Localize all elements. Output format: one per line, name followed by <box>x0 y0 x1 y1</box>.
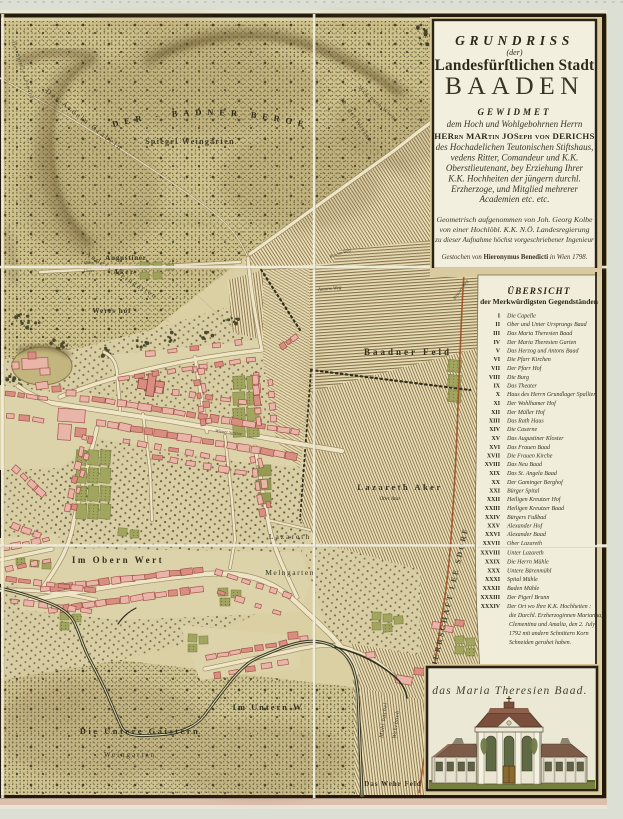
svg-text:Spital Mühle: Spital Mühle <box>507 577 538 583</box>
svg-text:XXI: XXI <box>489 489 501 495</box>
svg-text:XXVIII: XXVIII <box>480 551 500 557</box>
svg-text:XII: XII <box>491 410 501 416</box>
svg-text:Clementina und Amalia, den 2.: Clementina und Amalia, den 2. July <box>509 622 595 628</box>
svg-text:XXIX: XXIX <box>485 559 501 565</box>
svg-text:Alexander Hof: Alexander Hof <box>506 523 543 530</box>
svg-text:XXXII: XXXII <box>483 586 501 592</box>
svg-text:Heiligen Kreutzer Baad: Heiligen Kreutzer Baad <box>506 506 565 512</box>
svg-text:BAADEN: BAADEN <box>445 71 584 100</box>
svg-text:GRUNDRISS: GRUNDRISS <box>455 33 574 48</box>
svg-text:XXIII: XXIII <box>485 506 501 512</box>
svg-text:Lazareth Aker: Lazareth Aker <box>357 482 442 492</box>
svg-text:Im Obern Wert: Im Obern Wert <box>72 555 164 565</box>
svg-text:Der Gaminger Berghof: Der Gaminger Berghof <box>506 479 564 486</box>
svg-text:Geometrisch aufgenommen von Jo: Geometrisch aufgenommen von Joh. Georg K… <box>436 215 593 224</box>
svg-text:Oberstlieutenant, bey Erziehun: Oberstlieutenant, bey Erziehung Ihrer <box>446 163 584 173</box>
svg-text:Lazareth: Lazareth <box>269 532 311 541</box>
svg-text:XX: XX <box>491 480 500 486</box>
svg-text:VII: VII <box>491 366 501 372</box>
svg-text:II: II <box>495 322 500 328</box>
svg-text:Melngarten: Melngarten <box>265 568 315 577</box>
svg-text:VIII: VIII <box>489 375 501 381</box>
svg-text:Baadner Feld: Baadner Feld <box>364 347 452 357</box>
svg-text:Augustiner: Augustiner <box>105 254 146 262</box>
svg-text:XVII: XVII <box>487 454 501 460</box>
svg-text:Academien etc. etc.: Academien etc. etc. <box>479 194 550 204</box>
svg-text:Das Theater: Das Theater <box>506 384 537 390</box>
svg-text:Der Ort wo Ihre K.K. Hochheite: Der Ort wo Ihre K.K. Hochheiten : <box>506 604 591 610</box>
svg-text:Baden Mühle: Baden Mühle <box>507 586 539 592</box>
svg-text:XVI: XVI <box>489 445 501 451</box>
svg-text:XVIII: XVIII <box>485 462 501 468</box>
svg-text:Das Wehr Feld: Das Wehr Feld <box>364 780 421 788</box>
svg-text:vedens Ritter, Comandeur und K: vedens Ritter, Comandeur und K.K. <box>451 153 579 163</box>
svg-text:von einer Hochlöbl. K.K. N.Ö.: von einer Hochlöbl. K.K. N.Ö. Landesregi… <box>439 225 589 234</box>
svg-text:Ober Azar: Ober Azar <box>380 497 401 502</box>
svg-text:Der Maria Theresien Garten: Der Maria Theresien Garten <box>506 340 576 346</box>
svg-text:III: III <box>493 331 501 337</box>
svg-text:Die Burg: Die Burg <box>506 375 529 381</box>
svg-text:Das St. Angela Baad: Das St. Angela Baad <box>506 471 558 477</box>
svg-text:Alexander Baad: Alexander Baad <box>506 532 547 538</box>
svg-text:Das Herzog und Antons Baad: Das Herzog und Antons Baad <box>506 349 580 355</box>
svg-text:das Maria Theresien Baad.: das Maria Theresien Baad. <box>432 685 587 697</box>
svg-text:die Durchl. Erzherzoginnen Mar: die Durchl. Erzherzoginnen Marianna, <box>509 613 603 619</box>
svg-text:Ober und Unter Ursprungs Baad: Ober und Unter Ursprungs Baad <box>507 322 588 328</box>
svg-text:Gestochen von Hieronymus Bened: Gestochen von Hieronymus Benedicti in Wi… <box>442 254 588 261</box>
svg-text:Das Augustiner Kloster: Das Augustiner Kloster <box>506 436 564 442</box>
svg-text:Schneiden geruhet haben.: Schneiden geruhet haben. <box>509 640 571 646</box>
svg-text:VI: VI <box>493 357 500 363</box>
svg-text:GEWIDMET: GEWIDMET <box>477 107 551 117</box>
svg-text:Untere Bärenmühl: Untere Bärenmühl <box>507 568 552 574</box>
svg-text:Das Maria Theresien Baad: Das Maria Theresien Baad <box>506 331 573 337</box>
svg-text:der Merkwürdigsten Gegendständ: der Merkwürdigsten Gegendständen <box>480 297 599 306</box>
svg-text:IV: IV <box>493 340 500 346</box>
svg-text:V: V <box>496 349 501 355</box>
svg-text:Das Frauen Baad: Das Frauen Baad <box>506 445 551 451</box>
svg-text:Der Pigerl Brunn: Der Pigerl Brunn <box>506 595 549 601</box>
svg-text:XI: XI <box>493 401 500 407</box>
svg-text:Bürger Spital: Bürger Spital <box>507 489 540 495</box>
svg-text:Unter Lazareth: Unter Lazareth <box>507 551 544 557</box>
svg-text:Die Capelle: Die Capelle <box>506 314 536 320</box>
svg-text:Bürgers Fußbad: Bürgers Fußbad <box>507 514 547 521</box>
svg-text:XXX: XXX <box>487 568 501 574</box>
svg-text:X: X <box>496 392 501 398</box>
svg-text:1792 mit andern Schnittern Kor: 1792 mit andern Schnittern Korn <box>509 631 589 637</box>
svg-text:XXXIII: XXXIII <box>480 595 500 601</box>
svg-text:XXIV: XXIV <box>485 515 501 521</box>
svg-text:K.K. Hochheiten der jüngern du: K.K. Hochheiten der jüngern durchl. <box>447 174 580 184</box>
svg-text:Die Pfarr Kirchen: Die Pfarr Kirchen <box>506 356 551 363</box>
svg-text:XXVI: XXVI <box>485 532 501 538</box>
svg-text:XXV: XXV <box>487 524 501 530</box>
svg-text:Der Pfarr Hof: Der Pfarr Hof <box>506 365 543 372</box>
svg-text:Die Untere Gaistern: Die Untere Gaistern <box>80 726 201 736</box>
svg-text:des Hochadelichen Teutonischen: des Hochadelichen Teutonischen Stiftshau… <box>436 142 594 152</box>
svg-text:Weingarten: Weingarten <box>104 751 156 759</box>
svg-text:Spiegel Weingarten: Spiegel Weingarten <box>145 137 235 146</box>
svg-text:ÜBERSICHT: ÜBERSICHT <box>507 286 570 296</box>
svg-text:XIX: XIX <box>489 471 501 477</box>
svg-text:dem Hoch und Wohlgebohrnen Her: dem Hoch und Wohlgebohrnen Herrn <box>447 119 583 129</box>
svg-text:IX: IX <box>493 384 500 390</box>
svg-text:zu dieser Aufnahme höchst vorg: zu dieser Aufnahme höchst vorgeschrieben… <box>434 236 594 244</box>
svg-text:XXII: XXII <box>487 497 501 503</box>
svg-text:Das Neu Baad: Das Neu Baad <box>506 462 543 468</box>
svg-text:(der): (der) <box>507 48 523 57</box>
svg-text:Weres hof: Weres hof <box>92 307 131 315</box>
svg-text:Haus des Herrn Grundlager Spal: Haus des Herrn Grundlager Spallier <box>506 392 596 398</box>
svg-text:Erzherzoge, und Mitglied mehre: Erzherzoge, und Mitglied mehrerer <box>450 184 578 194</box>
svg-text:XXXI: XXXI <box>485 577 501 583</box>
svg-text:Die Caserne: Die Caserne <box>506 427 537 433</box>
svg-text:XIII: XIII <box>489 419 501 425</box>
svg-text:Das Rath Haus: Das Rath Haus <box>506 419 544 425</box>
svg-text:Der Müller Hof: Der Müller Hof <box>506 409 546 416</box>
svg-text:XIV: XIV <box>489 427 501 433</box>
svg-text:Im Untern W: Im Untern W <box>233 702 304 712</box>
svg-text:Heiligen Kreutzer Hof: Heiligen Kreutzer Hof <box>506 496 562 503</box>
svg-text:Die Frauen Kirche: Die Frauen Kirche <box>506 454 553 460</box>
svg-text:Die Herrn Mühle: Die Herrn Mühle <box>506 559 549 565</box>
svg-text:Der Wohlhamer Hof: Der Wohlhamer Hof <box>506 400 557 407</box>
svg-text:XXXIV: XXXIV <box>481 604 501 610</box>
svg-text:XV: XV <box>491 436 500 442</box>
